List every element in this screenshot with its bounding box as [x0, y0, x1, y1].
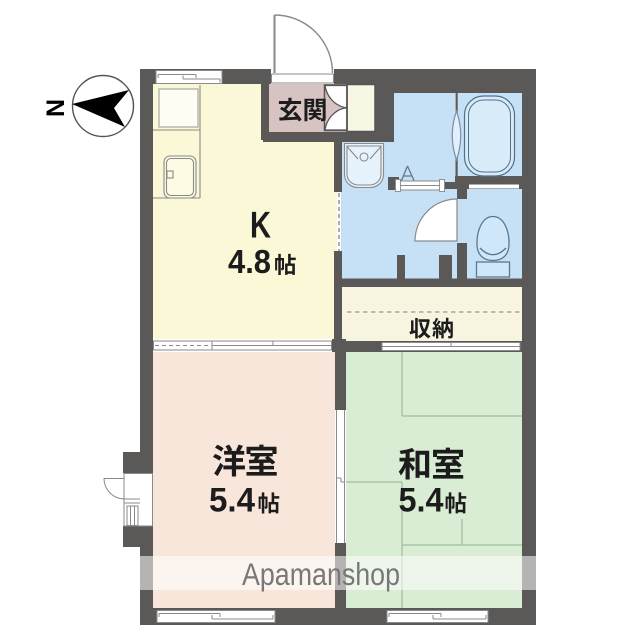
- svg-text:4.8: 4.8: [228, 243, 271, 280]
- svg-text:5.4: 5.4: [209, 482, 255, 520]
- svg-text:5.4: 5.4: [399, 482, 444, 520]
- svg-text:N: N: [42, 99, 70, 117]
- svg-text:Apamanshop: Apamanshop: [242, 556, 400, 592]
- svg-text:K: K: [250, 205, 271, 246]
